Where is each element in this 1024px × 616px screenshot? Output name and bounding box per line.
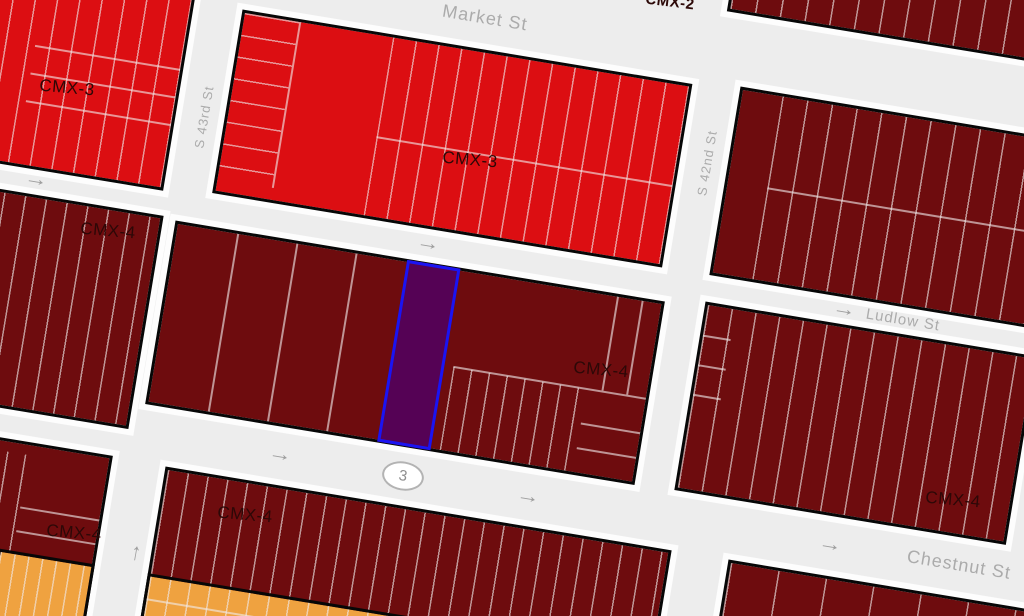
one-way-arrow-icon: →: [266, 442, 293, 468]
one-way-arrow-icon: →: [816, 532, 843, 558]
zone-label-cmx2: CMX-2: [645, 0, 696, 13]
parcel-block-north-of-market[interactable]: [730, 0, 1024, 58]
parcel-line: [26, 100, 171, 125]
street-label-chestnut: Chestnut St: [905, 546, 1012, 584]
parcel-line: [581, 422, 640, 433]
parcel-block-orange-south-west[interactable]: [0, 552, 91, 616]
street-label-s42nd: S 42nd St: [694, 129, 720, 197]
parcel-block-cmx4-market-ludlow-east[interactable]: [713, 90, 1024, 325]
parcel-line: [267, 244, 298, 422]
parcel-line: [208, 234, 239, 412]
one-way-arrow-icon: →: [414, 231, 441, 257]
one-way-arrow-icon: →: [830, 297, 857, 323]
parcel-line: [693, 394, 721, 400]
parcel-block-orange-south-center[interactable]: [135, 577, 446, 616]
parcel-block-cmx3-center[interactable]: [216, 13, 689, 264]
parcel-line: [698, 364, 726, 370]
street-label-s43rd: S 43rd St: [191, 85, 216, 150]
parcel-line: [626, 301, 643, 395]
one-way-arrow-icon: →: [22, 167, 49, 193]
parcel-block-cmx3-west[interactable]: [0, 0, 192, 187]
route-shield-3: 3: [380, 458, 426, 493]
street-label-market: Market St: [441, 1, 529, 36]
parcel-strip-columns: [364, 37, 689, 264]
one-way-arrow-up-icon: →: [121, 539, 147, 566]
parcel-line: [326, 253, 357, 431]
parcel-line: [577, 447, 636, 458]
parcel-block-cmx4-south-center[interactable]: [135, 470, 668, 616]
parcel-strip-columns: [752, 97, 1024, 325]
parcel-line: [703, 335, 731, 341]
parcel-line: [35, 45, 180, 70]
zoning-map-viewport[interactable]: Market St Ludlow St Chestnut St S 43rd S…: [0, 0, 1024, 616]
parcel-block-cmx4-center[interactable]: [149, 224, 662, 482]
one-way-arrow-icon: →: [514, 484, 541, 510]
street-label-ludlow: Ludlow St: [865, 305, 942, 334]
parcel-line: [20, 506, 99, 521]
parcel-line: [147, 598, 443, 616]
parcel-strip-columns: [440, 367, 587, 472]
parcel-block-cmx4-west[interactable]: [0, 172, 160, 426]
